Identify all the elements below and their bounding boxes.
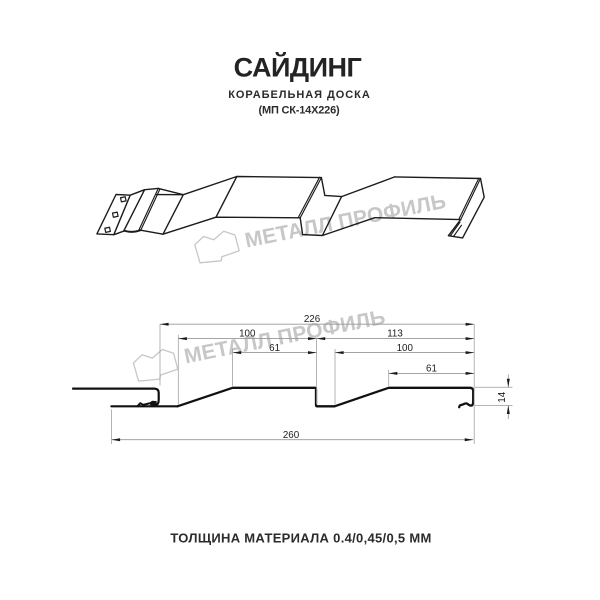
svg-text:ТОЛЩИНА МАТЕРИАЛА 0.4/0,45/0,5: ТОЛЩИНА МАТЕРИАЛА 0.4/0,45/0,5 ММ <box>170 531 431 546</box>
svg-text:100: 100 <box>397 343 414 354</box>
svg-text:(МП СК-14Х226): (МП СК-14Х226) <box>259 105 340 117</box>
svg-text:61: 61 <box>269 343 280 354</box>
svg-text:226: 226 <box>304 314 321 325</box>
svg-text:САЙДИНГ: САЙДИНГ <box>234 52 362 83</box>
svg-text:КОРАБЕЛЬНАЯ ДОСКА: КОРАБЕЛЬНАЯ ДОСКА <box>228 89 370 101</box>
svg-text:260: 260 <box>283 430 300 441</box>
svg-text:113: 113 <box>387 329 403 340</box>
svg-text:14: 14 <box>497 391 508 402</box>
svg-text:100: 100 <box>239 329 256 340</box>
svg-text:61: 61 <box>426 364 437 375</box>
